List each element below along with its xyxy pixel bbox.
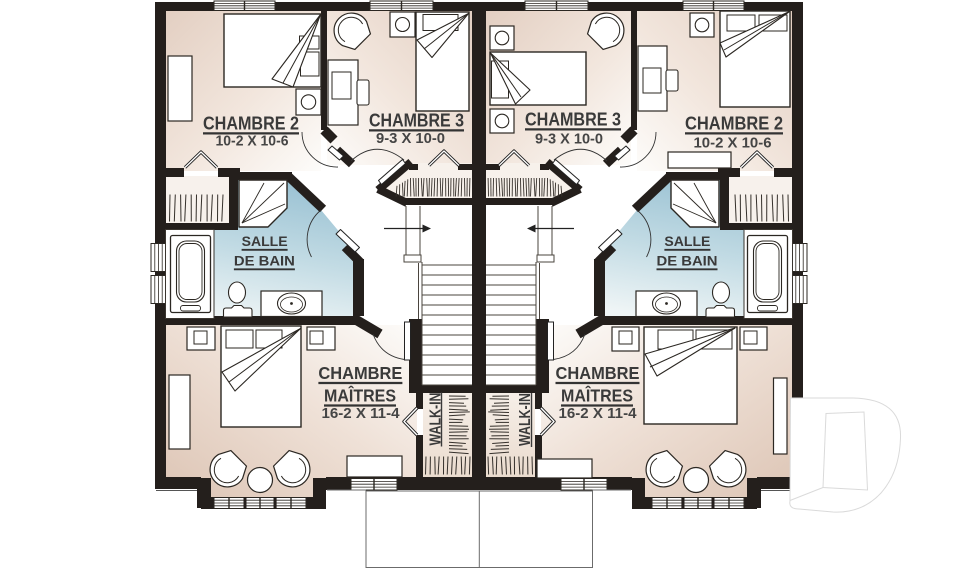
- svg-text:DE BAIN: DE BAIN: [657, 254, 718, 270]
- svg-text:CHAMBRE 2: CHAMBRE 2: [685, 113, 783, 134]
- svg-text:16-2 X 11-4: 16-2 X 11-4: [559, 406, 637, 422]
- svg-text:10-2 X 10-6: 10-2 X 10-6: [216, 134, 289, 150]
- svg-text:9-3 X 10-0: 9-3 X 10-0: [535, 132, 603, 148]
- svg-text:CHAMBRE 2: CHAMBRE 2: [203, 113, 299, 134]
- svg-text:10-2 X 10-6: 10-2 X 10-6: [694, 136, 772, 152]
- svg-text:CHAMBRE 3: CHAMBRE 3: [369, 110, 464, 131]
- svg-text:CHAMBRE: CHAMBRE: [556, 363, 640, 383]
- svg-text:DE BAIN: DE BAIN: [234, 254, 295, 270]
- svg-text:16-2 X 11-4: 16-2 X 11-4: [322, 406, 400, 422]
- svg-text:9-3 X 10-0: 9-3 X 10-0: [376, 131, 445, 147]
- svg-text:SALLE: SALLE: [664, 234, 710, 250]
- svg-text:MAÎTRES: MAÎTRES: [561, 385, 633, 406]
- svg-text:SALLE: SALLE: [242, 234, 288, 250]
- svg-text:MAÎTRES: MAÎTRES: [324, 385, 396, 406]
- svg-text:CHAMBRE 3: CHAMBRE 3: [525, 109, 621, 130]
- svg-text:CHAMBRE: CHAMBRE: [318, 363, 402, 383]
